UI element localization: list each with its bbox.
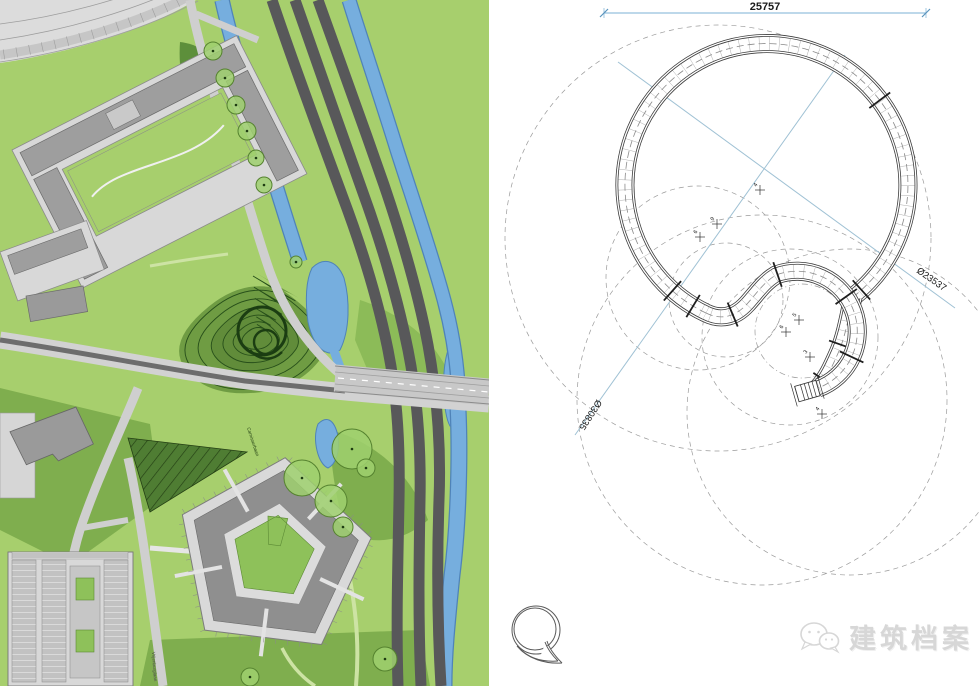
tree bbox=[204, 42, 222, 60]
center-mark-label: 4 bbox=[815, 406, 822, 412]
center-mark: 6 bbox=[779, 324, 791, 337]
architecture-article-figure: CarnisserbaanVrijenburglaan bbox=[0, 0, 979, 686]
watermark-text: 建筑档案 bbox=[849, 617, 973, 656]
spiral-logo-icon bbox=[512, 606, 578, 670]
center-mark-label: 6 bbox=[693, 229, 700, 235]
tree bbox=[248, 150, 264, 166]
tree bbox=[238, 122, 256, 140]
tree bbox=[284, 460, 320, 496]
center-mark-label: 5 bbox=[792, 312, 799, 318]
center-mark-label: 6 bbox=[779, 324, 786, 330]
tree bbox=[256, 177, 272, 193]
tree bbox=[227, 96, 245, 114]
tree bbox=[373, 647, 397, 671]
tree bbox=[241, 668, 259, 686]
center-mark-label: 4 bbox=[753, 182, 760, 188]
stairs bbox=[791, 376, 825, 407]
center-mark: 6 bbox=[693, 229, 705, 242]
dimension-value: 25757 bbox=[750, 1, 781, 13]
tree bbox=[357, 459, 375, 477]
center-mark: 3 bbox=[803, 349, 815, 362]
center-mark: 4 bbox=[753, 182, 765, 195]
chat-bubbles-icon bbox=[799, 620, 841, 654]
tree bbox=[315, 485, 347, 517]
tree bbox=[333, 517, 353, 537]
center-mark: 9 bbox=[710, 216, 722, 229]
diameter-label-30835: Ø30835 bbox=[576, 397, 604, 431]
diameter-label-23537: Ø23537 bbox=[914, 265, 948, 293]
tree bbox=[290, 256, 302, 268]
center-mark: 4 bbox=[815, 406, 827, 419]
tree bbox=[216, 69, 234, 87]
parking-complex bbox=[8, 552, 133, 686]
bridge-plan-drawing: 25757 Ø23537 Ø30835 4696534 bbox=[489, 0, 979, 686]
overall-dimension: 25757 bbox=[600, 1, 930, 18]
center-mark: 5 bbox=[792, 312, 804, 325]
watermark: 建筑档案 bbox=[799, 617, 973, 656]
center-mark-label: 9 bbox=[710, 216, 717, 222]
site-plan-map: CarnisserbaanVrijenburglaan bbox=[0, 0, 489, 686]
center-mark-label: 3 bbox=[803, 349, 810, 355]
axis-line-30835 bbox=[575, 55, 845, 435]
